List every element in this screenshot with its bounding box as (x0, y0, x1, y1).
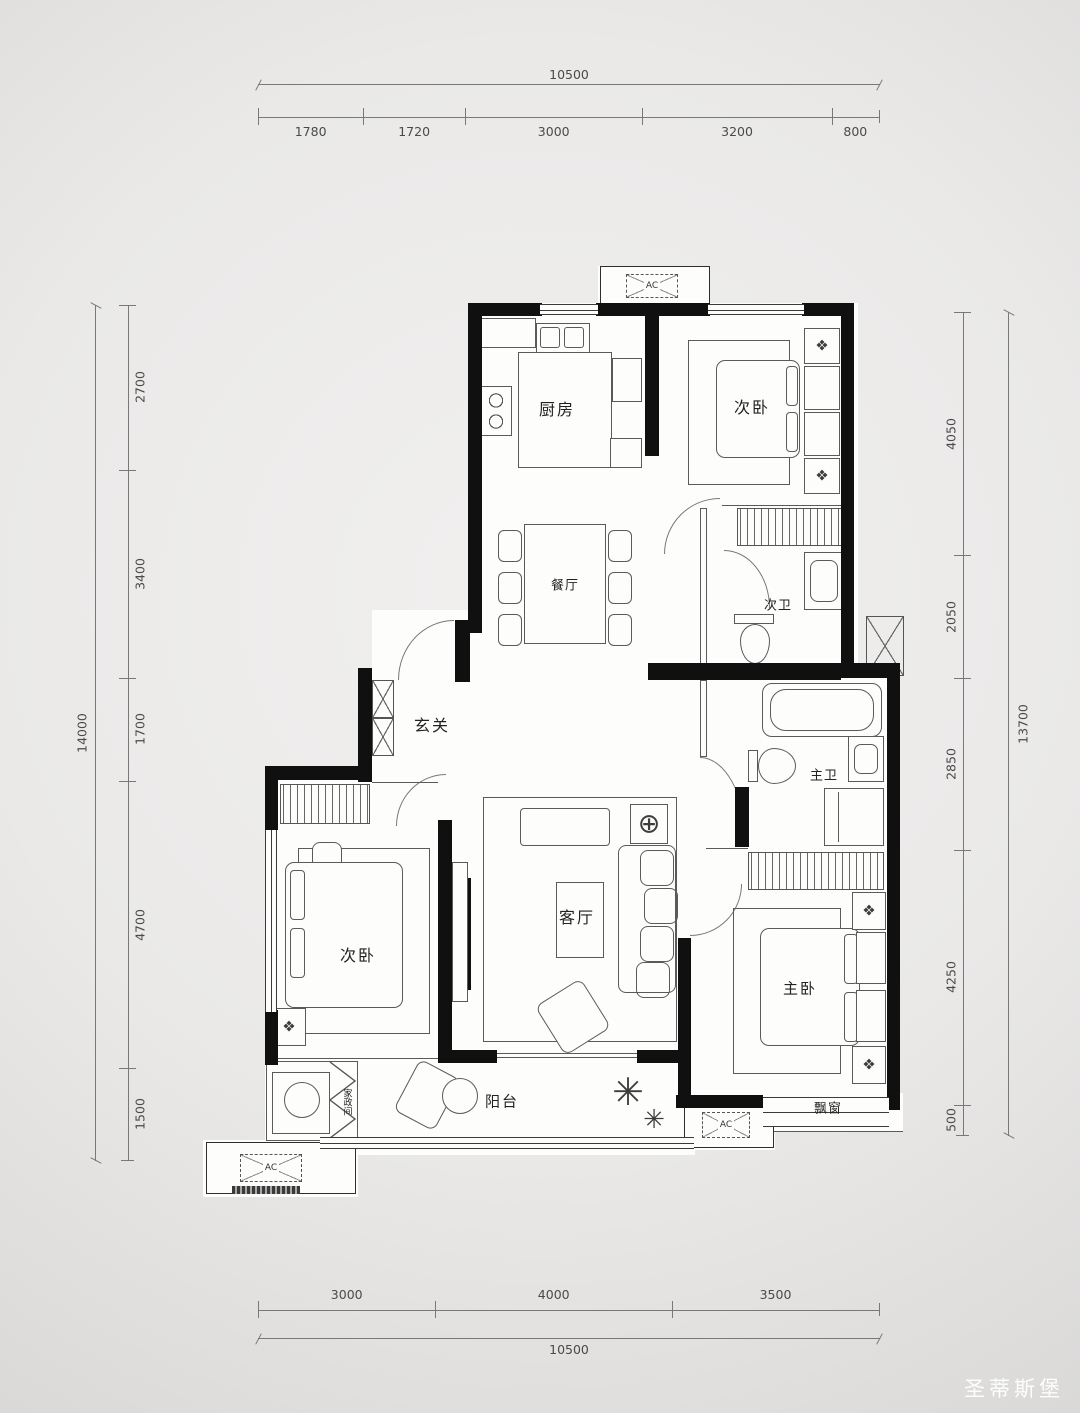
dim-value: 500 (943, 1108, 958, 1132)
wall (265, 766, 278, 830)
room-boundary (265, 1058, 440, 1059)
partition-wall (700, 680, 707, 757)
dim-total-right: 13700 (1008, 312, 1009, 1136)
wall (265, 1010, 278, 1065)
dim-segment: 4700 (121, 781, 134, 1068)
headboard-unit (804, 366, 840, 410)
headboard-unit (804, 412, 840, 456)
dim-segment: 2850 (956, 678, 969, 849)
dim-segment: 800 (832, 110, 879, 123)
pillow (290, 928, 305, 978)
dim-segment: 3000 (258, 1303, 435, 1316)
room-label-balcony: 阳台 (485, 1091, 519, 1112)
headboard-unit (856, 932, 886, 984)
dining-chair (498, 530, 522, 562)
floor-plan-canvas: ❖ ❖ ❖ ⊕ ✳ ✳ ❖ (0, 0, 1080, 1413)
dim-chain-right: 4050 2050 2850 4250 500 (956, 312, 969, 1136)
dim-segment: 2700 (121, 305, 134, 470)
shaft-hatch (372, 718, 394, 756)
kitchen-cabinet (610, 438, 642, 468)
shower-line (838, 792, 839, 842)
dim-value: 14000 (75, 713, 90, 753)
dim-segment: 2050 (956, 555, 969, 678)
wall (455, 620, 470, 682)
room-label-kitchen: 厨房 (539, 396, 575, 420)
lamp-icon: ❖ (815, 339, 828, 354)
dim-segment: 1780 (258, 110, 363, 123)
dining-chair (608, 614, 632, 646)
wall (887, 663, 900, 1110)
watermark: 圣蒂斯堡 (964, 1373, 1064, 1403)
dim-value: 1720 (398, 124, 430, 139)
sideboard (520, 808, 610, 846)
sink-basin (810, 560, 838, 602)
dim-total-bottom: 10500 (258, 1338, 880, 1339)
window (540, 304, 598, 315)
dim-value: 13700 (1016, 704, 1031, 744)
sofa-cushion (644, 888, 678, 924)
kitchen-sink-basin (540, 327, 560, 348)
bay-window-sill-line (763, 1131, 903, 1132)
ac-unit-inner: AC (626, 274, 678, 298)
dim-value: 2850 (943, 748, 958, 780)
partition-wall (706, 848, 748, 849)
sofa-cushion (640, 926, 674, 962)
dim-value: 3000 (331, 1287, 363, 1302)
kitchen-cabinet (612, 358, 642, 402)
room-label-bath-master: 主卫 (810, 765, 838, 784)
bathtub-inner (770, 689, 874, 731)
tv-console (452, 862, 468, 1002)
kitchen-counter (478, 318, 536, 348)
ac-label: AC (263, 1163, 279, 1173)
dining-chair (608, 530, 632, 562)
balcony-table (442, 1078, 478, 1114)
wall (358, 668, 372, 782)
tv-screen (468, 878, 471, 990)
ac-unit-inner: AC (702, 1112, 750, 1138)
wall (678, 938, 691, 1108)
sofa-cushion (636, 962, 670, 998)
dim-segment: 3000 (465, 110, 642, 123)
ac-grille (232, 1186, 300, 1194)
dim-segment: 4000 (435, 1303, 672, 1316)
dim-segment: 4250 (956, 850, 969, 1105)
wardrobe (748, 852, 884, 890)
wall (645, 303, 659, 456)
wall (265, 766, 372, 780)
room-label-bedroom-left: 次卧 (340, 942, 376, 966)
lamp-icon: ❖ (815, 469, 828, 484)
wall (648, 663, 841, 680)
dim-value: 4700 (132, 909, 147, 941)
dim-segment: 3400 (121, 470, 134, 678)
dining-chair (498, 614, 522, 646)
corridor-line (372, 782, 438, 783)
wall (440, 1050, 497, 1063)
dim-value: 4050 (943, 418, 958, 450)
sliding-door-line (497, 1057, 637, 1058)
dim-total-left: 14000 (95, 305, 96, 1161)
partition-wall (722, 505, 842, 506)
pillow (290, 870, 305, 920)
sink-basin (854, 744, 878, 774)
dim-total-top: 10500 (258, 84, 880, 85)
shower-area (824, 788, 884, 846)
pillow (786, 366, 798, 406)
dim-value: 2700 (132, 372, 147, 404)
dining-chair (608, 572, 632, 604)
dining-chair (498, 572, 522, 604)
dim-value: 3400 (132, 558, 147, 590)
dim-segment: 1700 (121, 678, 134, 782)
dim-value: 1700 (132, 714, 147, 746)
washing-machine-drum (284, 1082, 320, 1118)
plant-icon: ✳ (643, 1107, 665, 1133)
dim-value: 4250 (943, 961, 958, 993)
dim-value: 3200 (721, 124, 753, 139)
kitchen-sink-basin (564, 327, 584, 348)
wall (676, 1095, 763, 1108)
wall (735, 787, 749, 847)
dim-chain-bottom: 3000 4000 3500 (258, 1303, 880, 1316)
dim-value: 10500 (549, 67, 589, 82)
dim-segment: 3500 (672, 1303, 879, 1316)
window (265, 830, 277, 1012)
dim-segment: 1500 (121, 1068, 134, 1160)
toilet-tank (734, 614, 774, 624)
window (708, 304, 804, 315)
wall (658, 303, 710, 316)
shaft-hatch (372, 680, 394, 718)
room-label-bay-window: 飘窗 (814, 1098, 842, 1117)
toilet-tank (748, 750, 758, 782)
plant-icon: ✳ (612, 1073, 644, 1111)
room-label-bath-second: 次卫 (764, 595, 792, 614)
room-label-laundry: 家政间 (341, 1089, 354, 1116)
dim-value: 2050 (943, 601, 958, 633)
room-label-foyer: 玄关 (414, 712, 450, 736)
ac-unit-inner: AC (240, 1154, 302, 1182)
dim-value: 4000 (538, 1287, 570, 1302)
room-label-living: 客厅 (559, 904, 595, 928)
dim-value: 3500 (760, 1287, 792, 1302)
pillow (786, 412, 798, 452)
wall (468, 303, 482, 633)
headboard-unit (856, 990, 886, 1042)
room-label-bedroom-top: 次卧 (734, 394, 770, 418)
ac-label: AC (644, 281, 660, 291)
dim-value: 1780 (295, 124, 327, 139)
wall (637, 1050, 682, 1063)
ceiling-light-icon: ⊕ (638, 811, 661, 838)
dim-segment: 500 (956, 1105, 969, 1135)
wall (438, 820, 452, 1063)
lamp-icon: ❖ (862, 1058, 875, 1073)
ac-label: AC (718, 1120, 734, 1130)
lamp-icon: ❖ (282, 1020, 295, 1035)
dim-value: 1500 (132, 1098, 147, 1130)
sofa-cushion (640, 850, 674, 886)
wardrobe (280, 784, 370, 824)
wardrobe (737, 508, 843, 546)
dim-value: 10500 (549, 1342, 589, 1357)
dim-value: 800 (843, 124, 867, 139)
dim-segment: 1720 (363, 110, 465, 123)
lamp-icon: ❖ (862, 904, 875, 919)
dim-value: 3000 (538, 124, 570, 139)
dim-chain-top: 1780 1720 3000 3200 800 (258, 110, 880, 123)
stove (480, 386, 512, 436)
balcony-window (320, 1137, 694, 1149)
room-label-bedroom-master: 主卧 (783, 978, 817, 999)
dim-segment: 3200 (642, 110, 831, 123)
dim-chain-left: 2700 3400 1700 4700 1500 (121, 305, 134, 1161)
wall (841, 303, 854, 676)
room-label-dining: 餐厅 (551, 575, 579, 594)
dim-segment: 4050 (956, 312, 969, 555)
